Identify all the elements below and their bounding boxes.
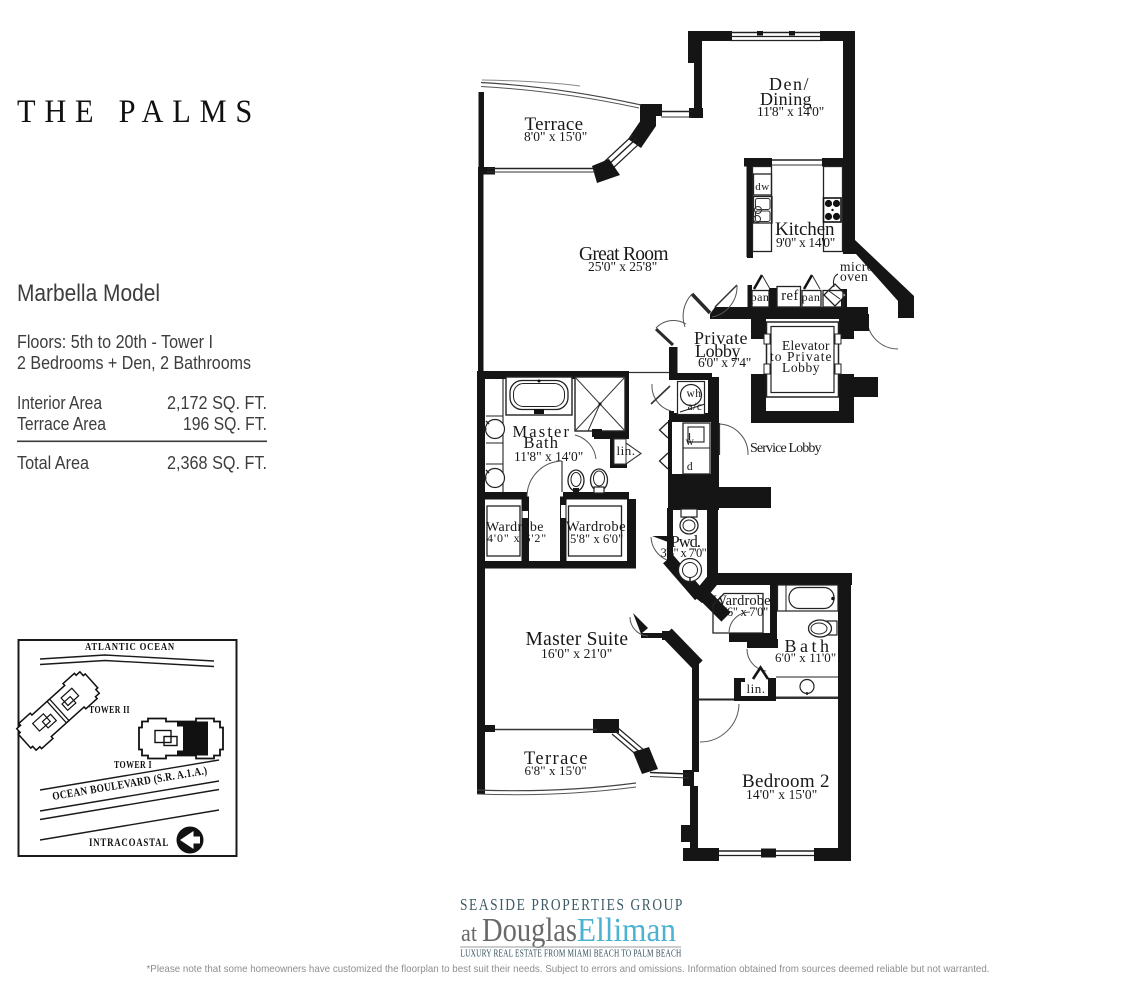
svg-text:6'8" x 15'0": 6'8" x 15'0": [525, 763, 588, 778]
svg-text:16'0" x 21'0": 16'0" x 21'0": [541, 646, 613, 661]
svg-text:at: at: [461, 921, 477, 947]
svg-text:Lobby: Lobby: [782, 360, 820, 375]
svg-text:Douglas: Douglas: [482, 912, 577, 949]
svg-text:2,368 SQ. FT.: 2,368 SQ. FT.: [167, 452, 267, 473]
svg-text:wh: wh: [686, 388, 701, 400]
svg-text:6'0" x 7'4": 6'0" x 7'4": [698, 355, 752, 370]
svg-text:2,172 SQ. FT.: 2,172 SQ. FT.: [167, 392, 267, 413]
svg-text:LUXURY REAL ESTATE FROM MIAMI: LUXURY REAL ESTATE FROM MIAMI BEACH TO P…: [461, 948, 682, 960]
svg-text:d: d: [687, 461, 693, 473]
svg-text:25'0" x 25'8": 25'0" x 25'8": [588, 259, 658, 274]
svg-text:dw: dw: [755, 181, 769, 193]
svg-text:3'6" x 7'0": 3'6" x 7'0": [661, 546, 708, 560]
svg-text:lin.: lin.: [747, 681, 766, 696]
svg-text:6'0" x 11'0": 6'0" x 11'0": [775, 650, 837, 665]
svg-text:Marbella Model: Marbella Model: [17, 280, 160, 307]
svg-text:11'8" x 14'0": 11'8" x 14'0": [757, 104, 825, 119]
svg-text:ATLANTIC OCEAN: ATLANTIC OCEAN: [85, 641, 175, 653]
svg-text:ref: ref: [781, 288, 799, 304]
svg-text:4'0" x 6'2": 4'0" x 6'2": [487, 531, 547, 545]
svg-text:pan: pan: [751, 290, 770, 304]
svg-text:Interior Area: Interior Area: [17, 392, 103, 413]
svg-text:INTRACOASTAL: INTRACOASTAL: [89, 835, 169, 849]
svg-text:Service Lobby: Service Lobby: [750, 441, 822, 456]
svg-text:TOWER II: TOWER II: [89, 705, 130, 716]
svg-text:Terrace Area: Terrace Area: [17, 413, 107, 434]
svg-text:TOWER I: TOWER I: [114, 760, 152, 771]
svg-text:5'8" x 6'0": 5'8" x 6'0": [570, 532, 624, 546]
svg-text:2 Bedrooms + Den, 2 Bathrooms: 2 Bedrooms + Den, 2 Bathrooms: [17, 352, 251, 373]
svg-text:Floors: 5th to 20th - Tower I: Floors: 5th to 20th - Tower I: [17, 331, 213, 352]
svg-text:14'0" x 15'0": 14'0" x 15'0": [746, 787, 818, 802]
svg-text:*Please note that some homeown: *Please note that some homeowners have c…: [147, 963, 990, 975]
svg-text:9'0" x 14'0": 9'0" x 14'0": [776, 235, 836, 250]
svg-text:8'0" x 15'0": 8'0" x 15'0": [524, 129, 588, 144]
svg-text:a/c: a/c: [688, 401, 703, 413]
svg-text:5'6" x 7'0": 5'6" x 7'0": [719, 605, 769, 619]
svg-text:Elliman: Elliman: [577, 912, 676, 949]
svg-text:oven: oven: [840, 269, 868, 284]
svg-text:pan: pan: [802, 290, 821, 304]
svg-text:Total Area: Total Area: [17, 452, 90, 473]
svg-text:lin.: lin.: [617, 443, 636, 458]
svg-text:THE PALMS: THE PALMS: [17, 94, 261, 130]
svg-text:11'8" x 14'0": 11'8" x 14'0": [514, 449, 584, 464]
svg-text:196 SQ. FT.: 196 SQ. FT.: [183, 413, 267, 434]
